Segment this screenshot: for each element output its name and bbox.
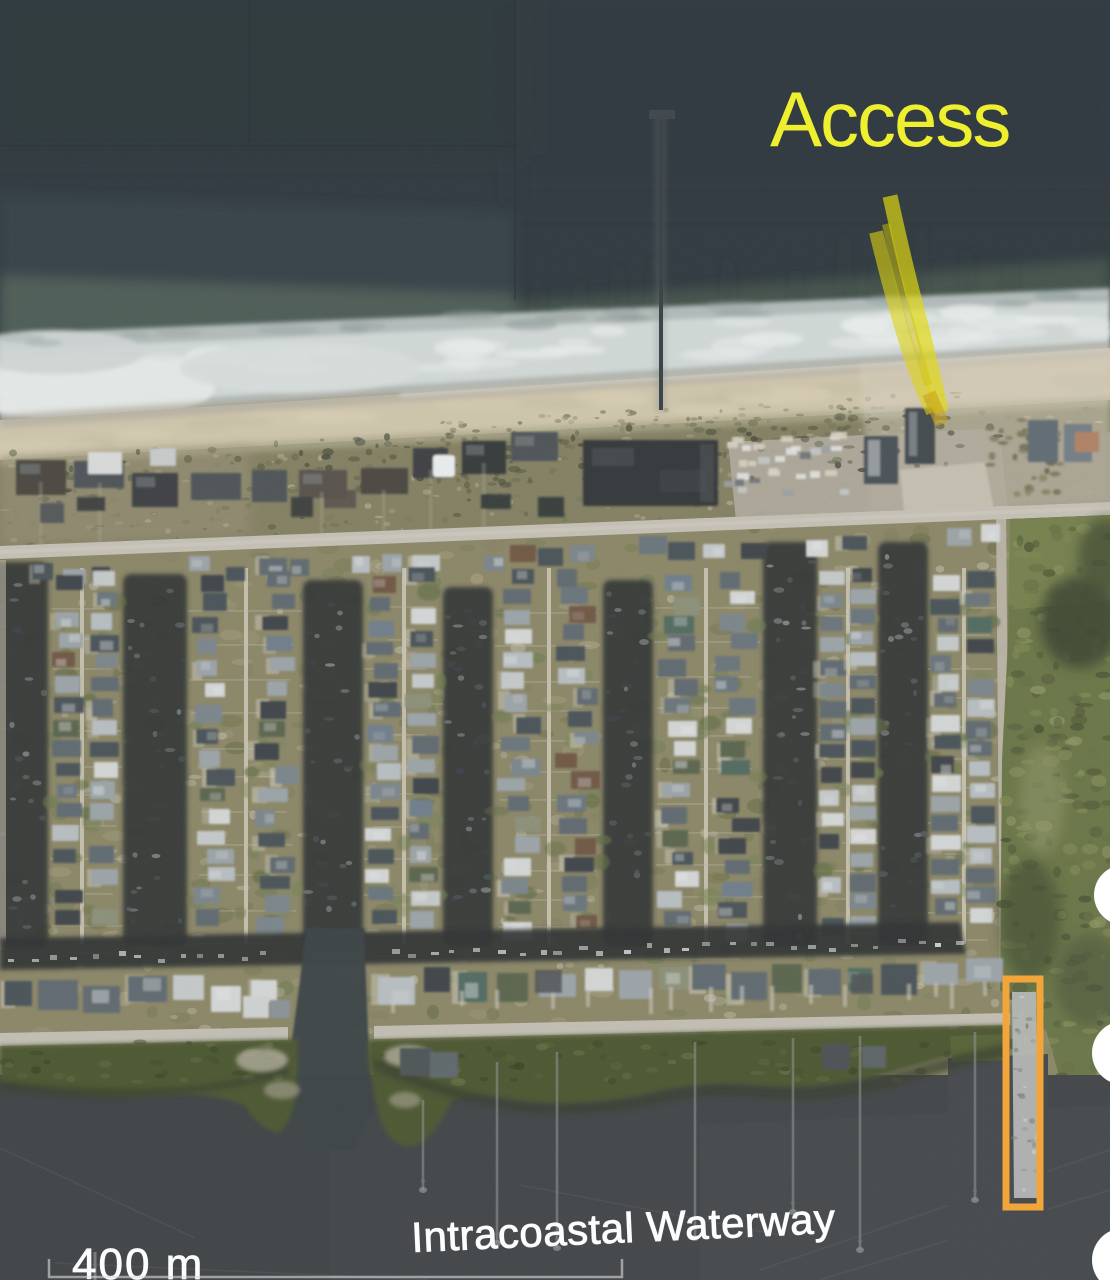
svg-text:400 m: 400 m — [72, 1240, 204, 1280]
svg-text:Access: Access — [770, 75, 1009, 163]
